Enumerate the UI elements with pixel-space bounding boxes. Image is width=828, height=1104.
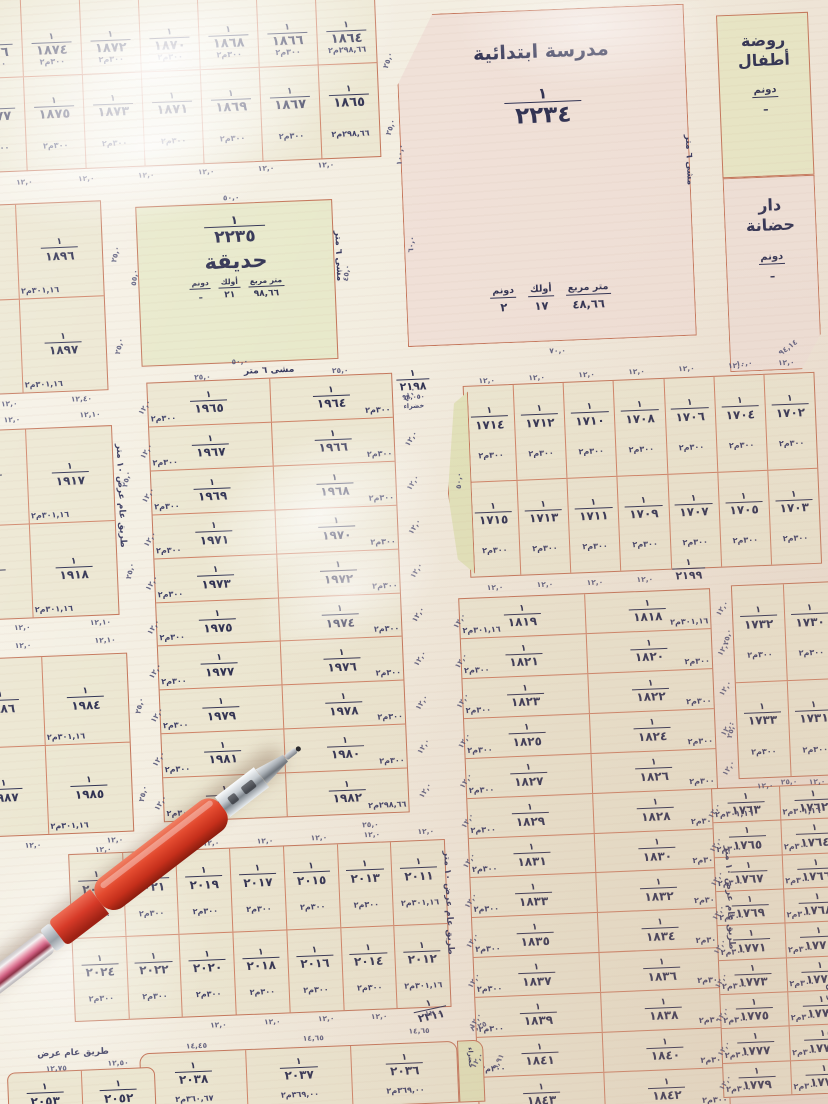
dim-label: ١٢,٠ <box>487 582 504 592</box>
plot-2017: ١٢٠١٧٣٠٠م٢ <box>230 846 287 931</box>
plot-number: ١٢٠١٧ <box>239 864 277 889</box>
plot-number: ١١٨٦٦ <box>267 22 308 48</box>
plot-number: ١١٩٦٤ <box>312 385 350 410</box>
dim-label: ٢٥,٠ <box>124 562 136 580</box>
plot-area: ٣٠٠م٢ <box>684 656 710 666</box>
plot-1837: ١١٨٣٧٣٠٠م٢ <box>474 953 601 997</box>
plot-number: ١١٧٣١ <box>795 700 828 725</box>
dim-label: ٢٥,٠ <box>137 785 149 803</box>
plot-area: ٣٠٠م٢ <box>196 989 222 999</box>
plot-area: ٣٠٠م٢ <box>722 981 748 991</box>
plot-area: ٣٠٠م٢ <box>376 668 402 678</box>
dim-label: ١٢,٠ <box>678 364 695 374</box>
dim-label: ٢٥,٠ <box>109 245 121 263</box>
plot-area: ٣٠٠م٢ <box>370 536 396 546</box>
plot-area: ٣٠٠م٢ <box>477 984 503 994</box>
nursery-parcel: دار حضانة دونم ـ <box>723 175 823 373</box>
plot-number: ١١٧٠٩ <box>625 496 663 521</box>
dim-label: ١٢,٠ <box>757 781 774 791</box>
plot-number: ١١٨٧٠ <box>149 27 190 53</box>
plot-number: ١١٩٧٠ <box>317 517 355 542</box>
plot-1985: ١١٩٨٥٣٠١,١٦م٢ <box>45 743 133 834</box>
dim-label: ٧٠,٠ <box>549 346 566 356</box>
plot-number: ١١٩١٧ <box>51 462 89 487</box>
dim-label: ٦٠,٠ <box>406 236 417 253</box>
plot-number: ١١٧٣٣ <box>743 702 781 727</box>
dim-label: ١٢,٠ <box>412 649 429 668</box>
plot-number: ١١٩٧٥ <box>199 609 237 634</box>
kindergarten-title: روضة أطفال <box>737 30 791 72</box>
plot-1819: ١١٨١٩٣٠١,١٦م٢ <box>459 594 586 638</box>
plot-area: ٣٠٠م٢ <box>784 841 810 851</box>
plot-1713: ١١٧١٣٣٠٠م٢ <box>518 478 572 574</box>
block-1984-1987: ١١٩٨٦٣٠٠م٢١١٩٨٤٣٠١,١٦م٢١١٩٨٧٣٠٠م٢١١٩٨٥٣٠… <box>0 653 134 839</box>
plot-area: ٣٠٠م٢ <box>793 1081 819 1091</box>
plot-number: ١١٩٨٢ <box>328 780 366 805</box>
garden-plot-number: ١ ٢٢٣٥ <box>203 213 266 248</box>
dim-label: ١٤,٤٥ <box>186 1041 208 1051</box>
plot-area: ٣٠٠م٢ <box>628 444 654 454</box>
plot-number: ١١٨٢٥ <box>508 723 546 748</box>
plot-1710: ١١٧١٠٣٠٠م٢ <box>564 381 618 477</box>
plot-area: ٣٠٠م٢ <box>374 624 400 634</box>
plot-1918: ١١٩١٨٣٠١,١٦م٢ <box>29 521 118 618</box>
plot-area: ٣٠٠م٢ <box>216 50 242 60</box>
plot-1986: ١١٩٨٦٣٠٠م٢ <box>0 657 45 748</box>
plot-number: ١١٩٧٦ <box>323 648 361 673</box>
plot-1865: ١١٨٦٥٢٩٨,٦٦م٢ <box>319 63 381 159</box>
plot-area: ٣٠٠م٢ <box>303 985 329 995</box>
plot-area: ٣٠٠م٢ <box>88 993 114 1003</box>
plot-area: ٣٠٠م٢ <box>0 142 10 152</box>
plot-2052: ١٢٠٥٢ <box>81 1068 155 1104</box>
plot-area: ٣٠٠م٢ <box>43 140 69 150</box>
garden-title: حديقة <box>204 248 268 275</box>
plot-number: ١١٨٣٨ <box>645 998 683 1023</box>
plot-area: ٣٠٠م٢ <box>791 1013 817 1023</box>
plot-number: ١٢٠٣٧ <box>280 1057 318 1082</box>
plot-2016: ١٢٠١٦٣٠٠م٢ <box>287 928 344 1013</box>
dim-label: ٢٥,٠ <box>332 366 349 376</box>
plot-area: ٣٠٠م٢ <box>220 133 246 143</box>
plot-area: ٣٠٠م٢ <box>472 864 498 874</box>
school-plot-number: ١ ٢٢٣٤ <box>504 85 582 130</box>
plot-number: ١١٨٧٣ <box>93 93 134 119</box>
plot-area: ٣٠٠م٢ <box>682 537 708 547</box>
plot-area: ٣٠١,١٦م٢ <box>25 379 64 390</box>
plot-1974: ١١٩٧٤٣٠٠م٢ <box>279 593 402 641</box>
plot-1768: ١١٧٦٨٣٠٠م٢ <box>784 887 828 923</box>
plot-1843: ١١٨٤٣٣٠٠م٢ <box>478 1073 605 1104</box>
plot-1766: ١١٧٦٦٣٠٠م٢ <box>782 852 828 888</box>
plot-1965: ١١٩٦٥٣٠٠م٢ <box>147 379 271 427</box>
plot-number: ١١٨٣٩ <box>519 1003 557 1028</box>
plot-number: ١١٩٨٥ <box>70 776 108 801</box>
plot-area: ٣٠٠م٢ <box>582 541 608 551</box>
plot-1968: ١١٩٦٨٣٠٠م٢ <box>273 462 396 510</box>
plot-area: ٣٠٠م٢ <box>464 665 490 675</box>
plot-number: ١١٨٢٢ <box>632 678 670 703</box>
plot-area: ٣٠٠م٢ <box>467 745 493 755</box>
plot-number: ١١٨٢٣ <box>506 683 544 708</box>
plot-area: ٢٩٨,٦٦م٢ <box>331 128 370 139</box>
block-1864-1877: ١١٨٧٦٣٠٠م٢١١٨٧٤٣٠٠م٢١١٨٧٢٣٠٠م٢١١٨٧٠٣٠٠م٢… <box>0 0 381 174</box>
plot-1864: ١١٨٦٤٢٩٨,٦٦م٢ <box>313 0 377 64</box>
plot-1763: ١١٧٦٣٣٠١,١٦م٢ <box>712 787 781 823</box>
dim-label: ١٤,٦٥ <box>303 1033 325 1043</box>
plot-number: ١١٨٧٥ <box>34 96 75 122</box>
plot-1711: ١١٧١١٣٠٠م٢ <box>568 476 622 572</box>
dim-label: ١٢,٠ <box>415 737 432 756</box>
plot-1731: ١١٧٣١٣٠٠م٢ <box>787 679 828 776</box>
plot-2014: ١٢٠١٤٣٠٠م٢ <box>341 926 398 1011</box>
plot-area: ٣٠١,١٦م٢ <box>401 897 440 908</box>
plot-1987: ١١٩٨٧٣٠٠م٢ <box>0 746 49 837</box>
plot-1708: ١١٧٠٨٣٠٠م٢ <box>614 379 668 475</box>
plot-area: ٣٠٠م٢ <box>679 442 705 452</box>
plot-number: ١٢٠١٩ <box>185 866 223 891</box>
plot-area: ٣٠١,١٦م٢ <box>782 806 821 817</box>
plot-area: ٣٠٠م٢ <box>161 135 187 145</box>
plot-area: ٣٠٠م٢ <box>368 493 394 503</box>
plot-number: ١١٨٣٧ <box>518 963 556 988</box>
plot-blocks-layer: ١١٨٧٦٣٠٠م٢١١٨٧٤٣٠٠م٢١١٨٧٢٣٠٠م٢١١٨٧٠٣٠٠م٢… <box>0 0 807 17</box>
plot-number: ١١٧١٤ <box>470 406 508 431</box>
plot-1779: ١١٧٧٩٣٠٠م٢ <box>723 1061 792 1097</box>
plot-area: ٣٠٠م٢ <box>689 776 715 786</box>
plot-number: ١١٩٦٨ <box>316 473 354 498</box>
plot-1777: ١١٧٧٧٣٠٠م٢ <box>722 1027 791 1063</box>
plot-area: ٣٠٠م٢ <box>747 650 773 660</box>
plot-area: ٣٠١,١٦م٢ <box>50 820 89 831</box>
plot-number: ١١٨٣١ <box>513 843 551 868</box>
plot-1762: ١١٧٦٢٣٠١,١٦م٢ <box>779 784 828 820</box>
plot-1714: ١١٧١٤٣٠٠م٢ <box>464 385 518 481</box>
dim-label: ١٢,٧٥ <box>46 1063 68 1073</box>
plot-1772: ١١٧٧٢٣٠٠م٢ <box>786 955 828 991</box>
plot-2038: ١٢٠٣٨٣٦٠,٦٧م٢ <box>140 1050 248 1104</box>
plot-1827: ١١٨٢٧٣٠٠م٢ <box>466 754 593 798</box>
plot-number: ١١٩١٨ <box>55 556 93 581</box>
plot-area: ٣٠٠م٢ <box>751 746 777 756</box>
dim-label: ١٢,١٠ <box>94 635 116 645</box>
plot-1868: ١١٨٦٨٣٠٠م٢ <box>195 0 260 69</box>
plot-number: ١١٩٨٤ <box>67 687 105 712</box>
plot-number: ١١٨٣٤ <box>641 918 679 943</box>
plot-number: ١١٧١٣ <box>524 500 562 525</box>
plot-area: ٣٠٠م٢ <box>786 910 812 920</box>
plot-area: ٣٠٠م٢ <box>353 899 379 909</box>
plot-2024: ١٢٠٢٤٣٠٠م٢ <box>73 936 130 1021</box>
plot-2053: ١٢٠٥٣ <box>8 1071 83 1104</box>
plot-1874: ١١٨٧٤٣٠٠م٢ <box>18 0 83 76</box>
dim-label: ١٢,٠ <box>537 579 554 589</box>
nursery-title: دار حضانة <box>745 194 796 236</box>
dim-label: ١٢,٠ <box>728 361 745 371</box>
plot-area: ٣٠١,١٦م٢ <box>21 285 60 296</box>
plot-1838: ١١٨٣٨٣٠٠م٢ <box>601 988 727 1032</box>
dim-label: ١٢,٠ <box>586 577 603 587</box>
plot-area: ٣٠٠م٢ <box>779 438 805 448</box>
label-2199: ١ ٢١٩٩ <box>672 558 706 581</box>
plot-1977: ١١٩٧٧٣٠٠م٢ <box>158 642 282 690</box>
plot-1875: ١١٨٧٥٣٠٠م٢ <box>24 75 87 171</box>
plot-number: ١١٨٧٧ <box>0 98 16 124</box>
plot-number: ١١٨٣٣ <box>514 883 552 908</box>
plot-number: ١١٨٦٥ <box>329 84 370 110</box>
plot-area: ٣٠٠م٢ <box>478 450 504 460</box>
block-1730-1733: ١١٧٣٢٣٠٠م٢١١٧٣٠٣٠٠م٢١١٧٣٣٣٠٠م٢١١٧٣١٣٠٠م٢ <box>731 581 828 779</box>
plot-1826: ١١٨٢٦٣٠٠م٢ <box>591 749 717 793</box>
plot-1822: ١١٨٢٢٣٠٠م٢ <box>588 669 714 713</box>
school-col-donum: دونم <box>490 285 516 299</box>
dim-label: ٢٥,٠ <box>133 697 145 715</box>
plot-area: ٣٠١,١٦م٢ <box>404 980 443 991</box>
plot-area: ٣٠٠م٢ <box>729 440 755 450</box>
dim-label: ١٢,٠ <box>317 160 334 170</box>
plot-number: ١١٨٢٤ <box>633 718 671 743</box>
plot-number: ١١٩٦٥ <box>190 390 228 415</box>
dim-label: ٢٥,٠ <box>362 820 379 830</box>
plot-1823: ١١٨٢٣٣٠٠م٢ <box>462 674 589 718</box>
plot-number: ١١٨٤٠ <box>646 1037 684 1062</box>
plot-1840: ١١٨٤٠٣٠٠م٢ <box>602 1028 728 1072</box>
plot-area: ٣٠١,١٦م٢ <box>31 509 70 520</box>
dim-label: ١٢,٠ <box>3 415 20 425</box>
plot-number: ١٢٠٢٢ <box>135 952 173 977</box>
plot-number: ١١٨٢٧ <box>509 763 547 788</box>
plot-number: ١١٨١٩ <box>503 604 541 629</box>
school-col-evlek: أولك <box>528 283 554 297</box>
plot-number: ١١٨٦٧ <box>270 86 311 112</box>
plot-2022: ١٢٠٢٢٣٠٠م٢ <box>126 934 183 1019</box>
plot-2037: ١٢٠٣٧٣٦٩,٠٠م٢ <box>246 1046 354 1104</box>
plot-1976: ١١٩٧٦٣٠٠م٢ <box>280 637 403 685</box>
plot-area: ٣٠٠م٢ <box>469 785 495 795</box>
plot-number: ١١٨٧١ <box>152 91 193 117</box>
plot-number: ١١٩٢٠ <box>0 560 7 585</box>
plot-number: ١١٨٤٣ <box>522 1082 560 1104</box>
plot-number: ١٢٠٢٠ <box>188 949 226 974</box>
plot-1870: ١١٨٧٠٣٠٠م٢ <box>136 0 201 72</box>
plot-area: ٣٠٠م٢ <box>372 580 398 590</box>
plot-area: ٣٠٠م٢ <box>0 59 6 69</box>
plot-area: ٣٠٠م٢ <box>783 533 809 543</box>
plot-area: ٣٠٠م٢ <box>165 764 191 774</box>
dim-label: ١٤,٦٥ <box>408 1026 430 1036</box>
plot-1872: ١١٨٧٢٣٠٠م٢ <box>77 0 142 74</box>
dim-label: ١٢,٠ <box>14 622 31 632</box>
plot-1829: ١١٨٢٩٣٠٠م٢ <box>467 794 594 838</box>
plot-area: ٣٠٠م٢ <box>528 448 554 458</box>
plot-area: ٣٠٠م٢ <box>39 57 65 67</box>
plot-number: ١١٧٣٢ <box>739 606 777 631</box>
plot-number: ١١٨٣٠ <box>638 838 676 863</box>
plot-area: ٣٠٠م٢ <box>157 52 183 62</box>
dim-label: ١٢,١٠ <box>90 617 112 627</box>
block-1818-1843: ١١٨١٩٣٠١,١٦م٢١١٨١٨٣٠١,١٦م٢١١٨٢١٣٠٠م٢١١٨٢… <box>458 588 731 1104</box>
plot-1869: ١١٨٦٩٣٠٠م٢ <box>201 68 264 164</box>
plot-area: ٣٠٠م٢ <box>802 744 828 754</box>
plot-number: ١٢٠٥٣ <box>26 1083 64 1104</box>
dim-label: ١٢,٠ <box>1 399 18 409</box>
plot-area: ٣٠٠م٢ <box>156 545 182 555</box>
dim-label: ١٢,٠ <box>410 605 427 624</box>
cadastral-map-photo: ١١٨٧٦٣٠٠م٢١١٨٧٤٣٠٠م٢١١٨٧٢٣٠٠م٢١١٨٧٠٣٠٠م٢… <box>0 0 828 1104</box>
plot-area: ٣٠٠م٢ <box>726 1084 752 1094</box>
nursery-donum: دونم ـ <box>758 251 786 281</box>
plot-1979: ١١٩٧٩٣٠٠م٢ <box>160 686 284 734</box>
plot-1709: ١١٧٠٩٣٠٠م٢ <box>618 474 672 570</box>
plot-1835: ١١٨٣٥٣٠٠م٢ <box>472 913 599 957</box>
dim-label: ١٢,٠ <box>16 177 33 187</box>
dim-label: ١٢,٠ <box>15 640 32 650</box>
dim-label: ١٢,٠ <box>809 777 826 787</box>
plot-number: ١٢٠١٤ <box>349 943 387 968</box>
plot-area: ٣٠٠م٢ <box>578 446 604 456</box>
plot-number: ١١٨٦٤ <box>326 20 367 46</box>
plot-area: ٣٠١,١٦م٢ <box>670 616 709 627</box>
plot-area: ٣٠٠م٢ <box>357 983 383 993</box>
plot-1703: ١١٧٠٣٣٠٠م٢ <box>768 468 821 564</box>
plot-area: ٣٠٠م٢ <box>792 1047 818 1057</box>
green-sliver: خضراء <box>457 1040 485 1103</box>
dim-label: ٢٥,٠ <box>781 777 798 787</box>
plot-number: ١١٩٦٩ <box>193 478 231 503</box>
plot-number: ١١٩٦٧ <box>192 434 230 459</box>
plot-1704: ١١٧٠٤٣٠٠م٢ <box>714 375 768 471</box>
plot-area: ٣٠٠م٢ <box>632 539 658 549</box>
plot-1828: ١١٨٢٨٣٠٠م٢ <box>593 789 719 833</box>
plot-area: ٣٠٠م٢ <box>377 712 403 722</box>
dim-label: ١٢,٠ <box>406 517 423 536</box>
plot-number: ١١٩٧٣ <box>197 566 235 591</box>
plot-area: ٣٠٠م٢ <box>98 54 124 64</box>
plot-number: ١١٧٣٠ <box>791 604 828 629</box>
plot-area: ٣٠٠م٢ <box>723 1015 749 1025</box>
plot-number: ١٢٠١٣ <box>346 860 384 885</box>
plot-number: ١١٩٧٧ <box>200 653 238 678</box>
plot-area: ٣٠٠م٢ <box>159 633 185 643</box>
plot-1712: ١١٧١٢٣٠٠م٢ <box>514 383 568 479</box>
map-sheet: ١١٨٧٦٣٠٠م٢١١٨٧٤٣٠٠م٢١١٨٧٢٣٠٠م٢١١٨٧٠٣٠٠م٢… <box>0 0 828 1104</box>
block-1917-1920: ١١٩١٩٣٠٠م٢١١٩١٧٣٠١,١٦م٢١١٩٢٠٣٠٠م٢١١٩١٨٣٠… <box>0 425 120 622</box>
plot-number: ١١٧١٠ <box>571 402 609 427</box>
plot-1897: ١١٨٩٧٣٠١,١٦م٢ <box>19 296 107 393</box>
plot-area: ٣٠٠م٢ <box>161 677 187 687</box>
plot-area: ٣٠٠م٢ <box>192 906 218 916</box>
dim-label: ١٢,٥٠ <box>107 1058 129 1068</box>
plot-area: ٣٠٠م٢ <box>532 543 558 553</box>
dim-label: ٥٠,٠ <box>454 472 464 489</box>
plot-1770: ١١٧٧٠٣٠٠م٢ <box>785 921 828 957</box>
plot-area: ٣٠٠م٢ <box>275 47 301 57</box>
plot-area: ٣٠٠م٢ <box>470 824 496 834</box>
plot-number: ١١٨٢٠ <box>630 639 668 664</box>
plot-1972: ١١٩٧٢٣٠٠م٢ <box>277 549 400 597</box>
plot-1702: ١١٧٠٢٣٠٠م٢ <box>764 373 817 469</box>
plot-area: ٢٩٨,٦٦م٢ <box>328 45 367 56</box>
plot-1896: ١١٨٩٦٣٠١,١٦م٢ <box>16 201 104 298</box>
plot-1820: ١١٨٢٠٣٠٠م٢ <box>586 629 712 673</box>
plot-number: ١١٨٤١ <box>521 1042 559 1067</box>
plot-number: ١٢٠٣٦ <box>385 1053 423 1078</box>
dim-label: ١٢,٠ <box>636 574 653 584</box>
plot-1969: ١١٩٦٩٣٠٠م٢ <box>151 466 275 514</box>
plot-number: ١١٨٢٩ <box>511 803 549 828</box>
dim-label: ١٢,٠ <box>95 844 112 854</box>
dim-label: ١٢,٠ <box>425 1008 442 1018</box>
dim-label: ٥٠,٠ <box>231 357 248 367</box>
plot-number: ١١٧٠٦ <box>671 398 709 423</box>
dim-label: ١٢,٠ <box>578 370 595 380</box>
plot-number: ١٢٠١٥ <box>292 862 330 887</box>
block-1702-1715: ١١٧١٤٣٠٠م٢١١٧١٢٣٠٠م٢١١٧١٠٣٠٠م٢١١٧٠٨٣٠٠م٢… <box>463 372 822 578</box>
plot-number: ١١٧١٢ <box>521 404 559 429</box>
plot-2013: ١٢٠١٣٣٠٠م٢ <box>338 842 395 927</box>
plot-1842: ١١٨٤٢٣٠٠م٢ <box>604 1068 730 1104</box>
dim-label: ١٢,٠ <box>257 836 274 846</box>
kindergarten-parcel: روضة أطفال دونم ـ <box>716 12 814 179</box>
plot-number: ١١٧٠٤ <box>721 396 759 421</box>
plot-1982: ١١٩٨٢٢٩٨,٦٦م٢ <box>286 769 409 817</box>
plot-area: ٣٠٠م٢ <box>788 944 814 954</box>
plot-number: ١١٧٠٥ <box>725 492 763 517</box>
school-title: مدرسة ابتدائية <box>473 38 610 65</box>
plot-number: ١١٧٠٣ <box>775 489 813 514</box>
plot-2020: ١٢٠٢٠٣٠٠م٢ <box>180 932 237 1017</box>
plot-number: ١٢٠١٦ <box>296 945 334 970</box>
plot-1919: ١١٩١٩٣٠٠م٢ <box>0 430 29 527</box>
dim-label: ٢٥,٠ <box>384 118 398 137</box>
plot-1970: ١١٩٧٠٣٠٠م٢ <box>275 505 398 553</box>
plot-1873: ١١٨٧٣٣٠٠م٢ <box>83 73 146 169</box>
garden-parcel: ١ ٢٢٣٥ حديقة متر مربع ٩٨,٦٦ أولك ٢١ دونم… <box>135 199 338 367</box>
road-label: طريق عام عرض <box>37 1047 109 1060</box>
plot-number: ١١٧١٥ <box>474 502 512 527</box>
plot-number: ١٢٠١٢ <box>403 941 441 966</box>
plot-1867: ١١٨٦٧٣٠٠م٢ <box>260 65 323 161</box>
plot-area: ٣٠٠م٢ <box>367 449 393 459</box>
plot-area: ٣٦٩,٠٠م٢ <box>281 1089 320 1100</box>
plot-number: ١١٧٠٨ <box>621 400 659 425</box>
dim-label: ٥٠,٠ <box>223 193 240 203</box>
plot-number: ١١٩٧٤ <box>321 605 359 630</box>
plot-1967: ١١٩٦٧٣٠٠م٢ <box>149 423 273 471</box>
plot-area: ٣٠٠م٢ <box>474 904 500 914</box>
plot-number: ١٢٠٣٨ <box>174 1061 212 1086</box>
plot-number: ١١٨٧٦ <box>0 34 13 60</box>
dim-label: ١٢,٤٠ <box>71 394 93 404</box>
plot-1732: ١١٧٣٢٣٠٠م٢ <box>732 584 787 681</box>
plot-area: ٣٠٠م٢ <box>151 413 177 423</box>
dim-label: ١٢,٠ <box>318 1014 335 1024</box>
plot-area: ٣٠٠م٢ <box>789 978 815 988</box>
plot-number: ١١٩٧٢ <box>319 561 357 586</box>
plot-area: ٣٠٠م٢ <box>465 705 491 715</box>
plot-2019: ١٢٠١٩٣٠٠م٢ <box>177 849 234 934</box>
plot-number: ١١٨٣٥ <box>516 923 554 948</box>
dim-label: ١٢,٠ <box>78 174 95 184</box>
plot-area: ٣٠٠م٢ <box>158 589 184 599</box>
plot-area: ٣٦٩,٠٠م٢ <box>386 1085 425 1096</box>
plot-1775: ١١٧٧٥٣٠٠م٢ <box>720 992 789 1028</box>
plot-area: ٣٠٠م٢ <box>379 756 405 766</box>
plot-number: ١٢٠١٨ <box>242 947 280 972</box>
plot-area: ٣٠٠م٢ <box>799 648 825 658</box>
plot-1776: ١١٧٧٦٣٠٠م٢ <box>789 1024 828 1060</box>
plot-1966: ١١٩٦٦٣٠٠م٢ <box>271 418 394 466</box>
